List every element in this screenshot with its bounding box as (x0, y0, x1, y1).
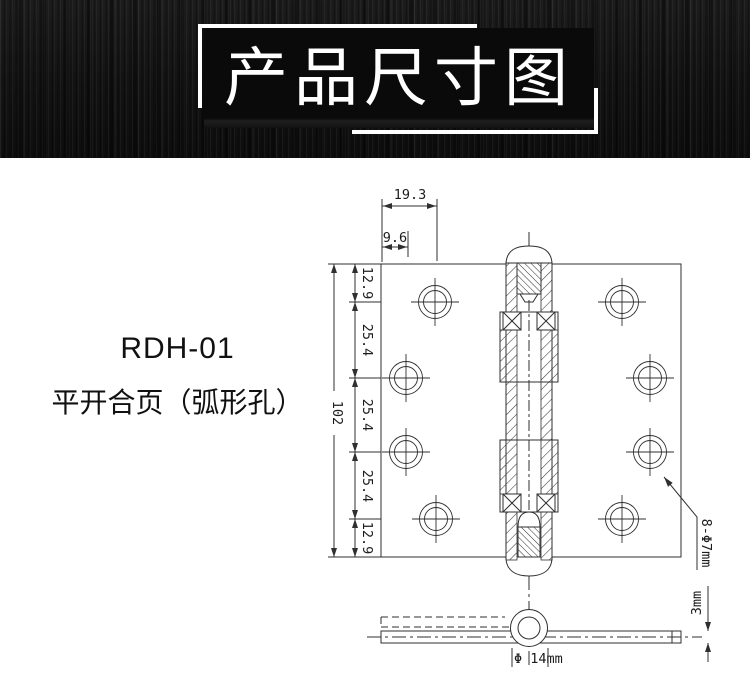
knuckle-barrel-section (511, 610, 548, 647)
dim-total-length: 102 (329, 401, 345, 425)
dim-leaf-thickness: 3mm (689, 591, 705, 615)
dim-spacing-4: 25.4 (359, 470, 375, 503)
dim-knuckle-diameter: Φ 14mm (514, 651, 563, 667)
screw-hole (412, 495, 460, 543)
edge-view: Φ 14mm 3mm (367, 576, 711, 669)
thickness-dimension: 3mm (689, 586, 711, 662)
dim-spacing-1: 12.9 (359, 267, 375, 300)
dim-spacing-2: 25.4 (359, 324, 375, 357)
screw-hole (626, 354, 674, 402)
screw-hole (626, 428, 674, 476)
product-dimension-page: 产品尺寸图 RDH-01 平开合页（弧形孔） (0, 0, 750, 691)
screw-hole (598, 495, 646, 543)
barrel-bottom-cap (506, 559, 552, 576)
hidden-leaf-outline (381, 617, 511, 627)
dimension-chain-left: 12.9 25.4 25.4 25.4 12.9 102 (328, 264, 381, 557)
hinge-technical-drawing: 12.9 25.4 25.4 25.4 12.9 102 19.3 9.6 (0, 0, 750, 691)
screw-hole (598, 278, 646, 326)
front-view: 12.9 25.4 25.4 25.4 12.9 102 19.3 9.6 (328, 187, 714, 576)
barrel-top-cap (506, 246, 552, 263)
screw-hole (411, 278, 459, 326)
hole-spec-leader: 8-Φ7mm (664, 477, 714, 570)
dimension-top: 19.3 9.6 (382, 187, 437, 262)
pin-bottom-recess (518, 512, 540, 527)
pin-end-section (518, 527, 540, 557)
dim-outer-hole-offset: 19.3 (394, 187, 427, 203)
dim-inner-hole-offset: 9.6 (383, 230, 407, 246)
pin-head-section (517, 263, 541, 294)
hinge-pin-barrel (500, 232, 558, 576)
dim-spacing-5: 12.9 (359, 522, 375, 555)
left-leaf-outline (381, 264, 506, 557)
screw-hole (382, 354, 430, 402)
right-leaf-outline (552, 264, 681, 557)
screw-holes (382, 278, 674, 543)
dim-holes-spec: 8-Φ7mm (698, 519, 714, 568)
screw-hole (382, 428, 430, 476)
dim-spacing-3: 25.4 (359, 399, 375, 432)
